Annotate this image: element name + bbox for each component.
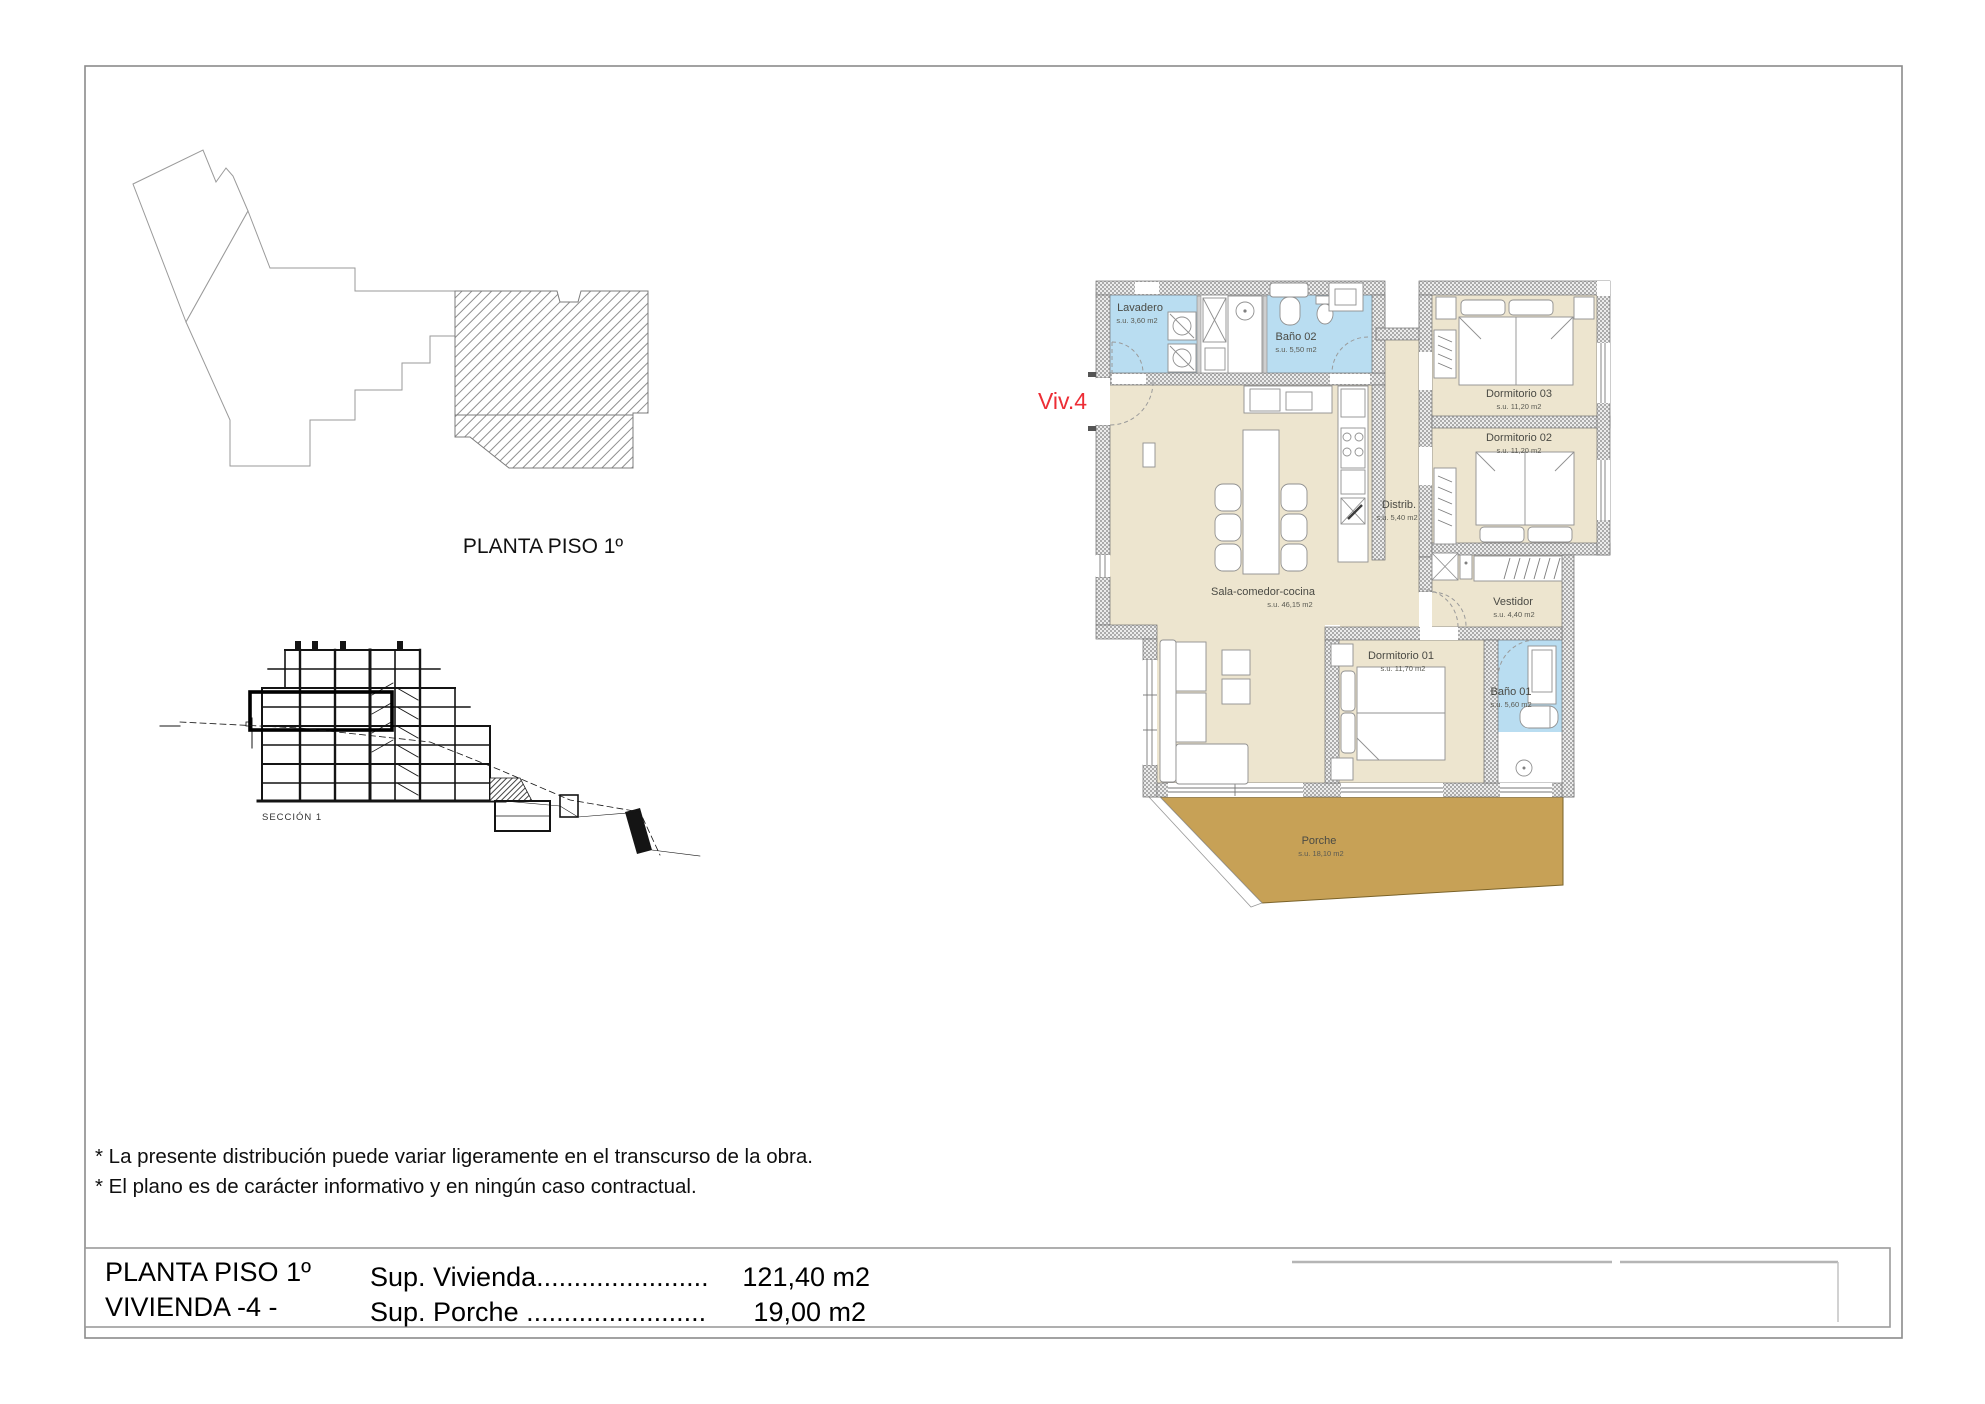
label-dorm03: Dormitorio 03 xyxy=(1486,388,1552,400)
room-sala-hall xyxy=(1340,560,1419,627)
note-line1: * La presente distribución puede variar … xyxy=(95,1145,813,1168)
section-title: SECCIÓN 1 xyxy=(262,812,322,823)
label-porche: Porche xyxy=(1302,835,1337,847)
vestidor-closet xyxy=(1432,553,1562,581)
notes: * La presente distribución puede variar … xyxy=(95,1145,813,1198)
room-porche xyxy=(1160,797,1563,903)
title-block-box xyxy=(85,1248,1890,1327)
area-bano01: s.u. 5,60 m2 xyxy=(1490,700,1531,709)
titleblock-dwelling-name: VIVIENDA -4 - xyxy=(105,1292,278,1322)
sup-porche-value: 19,00 m2 xyxy=(753,1297,866,1327)
sup-porche-label: Sup. Porche ........................ xyxy=(370,1297,706,1327)
sup-vivienda-value: 121,40 m2 xyxy=(742,1262,870,1292)
wall-niche xyxy=(1143,443,1155,467)
area-dorm03: s.u. 11,20 m2 xyxy=(1497,402,1542,411)
area-dorm02: s.u. 11,20 m2 xyxy=(1497,446,1542,455)
label-dorm01: Dormitorio 01 xyxy=(1368,650,1434,662)
room-distrib xyxy=(1385,340,1419,560)
area-dorm01: s.u. 11,70 m2 xyxy=(1381,664,1426,673)
site-plan xyxy=(133,150,648,468)
site-plan-body xyxy=(186,211,455,466)
site-plan-highlighted-unit xyxy=(455,291,648,468)
floor-plan: Lavadero s.u. 3,60 m2 Baño 02 s.u. 5,50 … xyxy=(1038,281,1610,907)
section-drawing xyxy=(160,641,700,856)
area-bano02: s.u. 5,50 m2 xyxy=(1275,345,1316,354)
label-dorm02: Dormitorio 02 xyxy=(1486,432,1552,444)
area-distrib: s.u. 5,40 m2 xyxy=(1376,513,1417,522)
label-vestidor: Vestidor xyxy=(1493,596,1533,608)
label-bano02: Baño 02 xyxy=(1276,331,1317,343)
unit-tag-viv4: Viv.4 xyxy=(1038,388,1087,414)
plan-sheet: PLANTA PISO 1º xyxy=(0,0,1985,1404)
label-bano01: Baño 01 xyxy=(1491,686,1532,698)
area-sala: s.u. 46,15 m2 xyxy=(1267,600,1312,609)
label-distrib: Distrib. xyxy=(1382,499,1416,511)
area-vestidor: s.u. 4,40 m2 xyxy=(1493,610,1534,619)
utility-fixtures xyxy=(1203,296,1262,373)
area-lavadero: s.u. 3,60 m2 xyxy=(1116,316,1157,325)
sup-vivienda-label: Sup. Vivienda....................... xyxy=(370,1262,709,1292)
sheet-canvas: PLANTA PISO 1º xyxy=(0,0,1985,1404)
label-lavadero: Lavadero xyxy=(1117,302,1163,314)
note-line2: * El plano es de carácter informativo y … xyxy=(95,1175,697,1198)
site-plan-title: PLANTA PISO 1º xyxy=(463,535,624,558)
area-porche: s.u. 18,10 m2 xyxy=(1298,849,1343,858)
title-block: PLANTA PISO 1º VIVIENDA -4 - Sup. Vivien… xyxy=(85,1248,1890,1327)
label-sala: Sala-comedor-cocina xyxy=(1211,586,1316,598)
titleblock-plan-name: PLANTA PISO 1º xyxy=(105,1257,311,1287)
